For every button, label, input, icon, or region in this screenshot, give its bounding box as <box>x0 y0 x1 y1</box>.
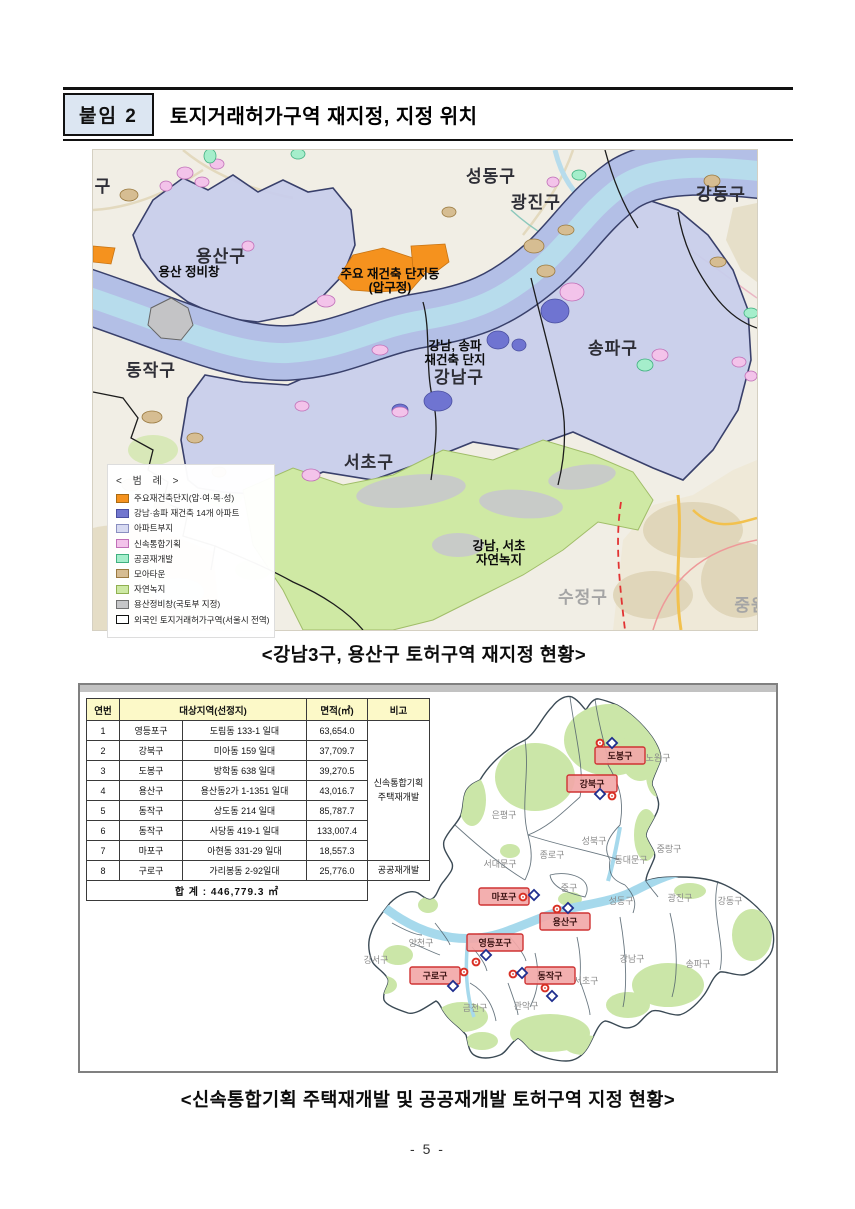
legend-item: 주요재건축단지(압·여·목·성) <box>116 492 266 504</box>
area-cell: 63,654.0 <box>307 721 368 741</box>
location-cell: 도림동 133-1 일대 <box>183 721 307 741</box>
highlighted-district-label: 구로구 <box>423 971 448 981</box>
table-header-row: 연번대상지역(선정지)면적(㎡)비고 <box>87 699 430 721</box>
district-label: 송파구 <box>588 339 638 358</box>
district-cell: 동작구 <box>120 801 183 821</box>
legend-label: 주요재건축단지(압·여·목·성) <box>134 492 234 504</box>
area-cell: 43,016.7 <box>307 781 368 801</box>
legend-swatch <box>116 585 129 594</box>
location-cell: 사당동 419-1 일대 <box>183 821 307 841</box>
legend-item: 강남·송파 재건축 14개 아파트 <box>116 507 266 519</box>
legend-label: 공공재개발 <box>134 553 173 565</box>
area-cell: 133,007.4 <box>307 821 368 841</box>
district-cell: 구로구 <box>120 861 183 881</box>
legend-label: 아파트부지 <box>134 522 173 534</box>
highlighted-district-label: 강북구 <box>580 778 605 789</box>
legend-swatch <box>116 554 129 563</box>
location-cell: 용산동2가 1-1351 일대 <box>183 781 307 801</box>
row-no: 5 <box>87 801 120 821</box>
map-legend: < 범 례 > 주요재건축단지(압·여·목·성)강남·송파 재건축 14개 아파… <box>107 464 275 638</box>
map-annotation: 강남, 서초자연녹지 <box>473 538 526 567</box>
map-annotation: 강남, 송파재건축 단지 <box>425 338 486 367</box>
district-label: 광진구 <box>668 892 693 903</box>
map-figure-gangnam-yongsan: 용산구성동구광진구강동구동작구강남구송파구서초구구수정구중원용산 정비창주요 재… <box>92 149 758 631</box>
row-no: 3 <box>87 761 120 781</box>
site-circle-dot <box>475 961 477 963</box>
district-label: 노원구 <box>646 753 671 763</box>
legend-swatch <box>116 600 129 609</box>
district-label: 중랑구 <box>657 843 682 854</box>
legend-item: 용산정비창(국토부 지정) <box>116 598 266 610</box>
row-no: 1 <box>87 721 120 741</box>
district-label: 은평구 <box>492 810 517 820</box>
legend-item: 신속통합기획 <box>116 538 266 550</box>
legend-swatch <box>116 615 129 624</box>
legend-item: 공공재개발 <box>116 553 266 565</box>
legend-swatch <box>116 569 129 578</box>
area-cell: 37,709.7 <box>307 741 368 761</box>
figure2-caption: <신속통합기획 주택재개발 및 공공재개발 토허구역 지정 현황> <box>78 1086 778 1112</box>
document-page: 붙임 2 토지거래허가구역 재지정, 지정 위치 <box>0 0 855 1209</box>
legend-label: 모아타운 <box>134 568 165 580</box>
figure1-caption: <강남3구, 용산구 토허구역 재지정 현황> <box>92 641 756 667</box>
district-label: 성동구 <box>466 167 516 186</box>
district-label: 성동구 <box>609 896 634 906</box>
row-no: 7 <box>87 841 120 861</box>
legend-title: < 범 례 > <box>116 472 266 487</box>
attachment-header: 붙임 2 토지거래허가구역 재지정, 지정 위치 <box>63 87 793 141</box>
location-cell: 아현동 331-29 일대 <box>183 841 307 861</box>
district-cell: 동작구 <box>120 821 183 841</box>
highlighted-district-label: 마포구 <box>492 891 517 902</box>
legend-label: 신속통합기획 <box>134 538 181 550</box>
row-no: 8 <box>87 861 120 881</box>
legend-item: 아파트부지 <box>116 522 266 534</box>
location-cell: 상도동 214 일대 <box>183 801 307 821</box>
remark-last-cell: 공공재개발 <box>368 861 430 881</box>
map-figure-seoul-designation: 노원구은평구성북구중랑구종로구서대문구동대문구중구성동구광진구강동구강남구송파구… <box>78 683 778 1073</box>
figure2-top-strip <box>80 685 776 692</box>
district-label: 구 <box>95 177 112 196</box>
neighbor-district-label: 수정구 <box>558 588 608 607</box>
district-label: 동작구 <box>126 361 176 380</box>
district-cell: 도봉구 <box>120 761 183 781</box>
legend-swatch <box>116 509 129 518</box>
column-header: 면적(㎡) <box>307 699 368 721</box>
district-label: 관악구 <box>514 1000 539 1011</box>
legend-swatch <box>116 494 129 503</box>
highlighted-district-label: 용산구 <box>553 916 578 927</box>
location-cell: 방학동 638 일대 <box>183 761 307 781</box>
site-circle-dot <box>599 742 601 744</box>
highlighted-district-label: 동작구 <box>538 971 563 981</box>
district-cell: 강북구 <box>120 741 183 761</box>
district-label: 성북구 <box>582 836 607 846</box>
legend-item: 외국인 토지거래허가구역(서울시 전역) <box>116 614 266 626</box>
area-cell: 25,776.0 <box>307 861 368 881</box>
area-cell: 18,557.3 <box>307 841 368 861</box>
legend-item: 자연녹지 <box>116 583 266 595</box>
neighbor-district-label: 중원 <box>734 596 757 615</box>
site-circle-dot <box>522 896 524 898</box>
area-cell: 39,270.5 <box>307 761 368 781</box>
location-cell: 가리봉동 2-92일대 <box>183 861 307 881</box>
column-header: 대상지역(선정지) <box>120 699 307 721</box>
district-label: 금천구 <box>463 1003 488 1013</box>
district-label: 양천구 <box>409 938 434 948</box>
location-cell: 미아동 159 일대 <box>183 741 307 761</box>
legend-label: 용산정비창(국토부 지정) <box>134 598 220 610</box>
district-label: 서초구 <box>574 976 599 986</box>
district-label: 송파구 <box>686 959 711 969</box>
designation-table: 연번대상지역(선정지)면적(㎡)비고 1영등포구도림동 133-1 일대63,6… <box>86 698 430 901</box>
site-circle-dot <box>512 973 514 975</box>
area-cell: 85,787.7 <box>307 801 368 821</box>
district-cell: 마포구 <box>120 841 183 861</box>
district-label: 종로구 <box>540 850 565 860</box>
district-label: 강동구 <box>696 185 746 204</box>
district-label: 강서구 <box>364 955 389 965</box>
district-cell: 용산구 <box>120 781 183 801</box>
row-no: 6 <box>87 821 120 841</box>
site-circle-dot <box>544 987 546 989</box>
district-label: 강남구 <box>434 368 484 387</box>
district-label: 동대문구 <box>614 855 647 865</box>
table-row: 8구로구가리봉동 2-92일대25,776.0공공재개발 <box>87 861 430 881</box>
total-cell: 합 계 : 446,779.3 ㎡ <box>87 881 368 901</box>
map-annotation: 용산 정비창 <box>159 264 220 279</box>
district-label: 서초구 <box>344 453 394 472</box>
legend-label: 자연녹지 <box>134 583 165 595</box>
site-circle-dot <box>463 971 465 973</box>
row-no: 2 <box>87 741 120 761</box>
district-label: 강남구 <box>620 954 645 964</box>
district-label: 중구 <box>561 883 578 893</box>
page-number: - 5 - <box>0 1141 855 1157</box>
column-header: 비고 <box>368 699 430 721</box>
site-circle-dot <box>611 795 613 797</box>
row-no: 4 <box>87 781 120 801</box>
legend-item: 모아타운 <box>116 568 266 580</box>
page-title: 토지거래허가구역 재지정, 지정 위치 <box>170 100 478 129</box>
site-circle-dot <box>556 908 558 910</box>
legend-label: 외국인 토지거래허가구역(서울시 전역) <box>134 614 270 626</box>
table-total-row: 합 계 : 446,779.3 ㎡ <box>87 881 430 901</box>
district-label: 서대문구 <box>483 859 516 869</box>
legend-label: 강남·송파 재건축 14개 아파트 <box>134 507 239 519</box>
remark-group-cell: 신속통합기획주택재개발 <box>368 721 430 861</box>
table-row: 1영등포구도림동 133-1 일대63,654.0신속통합기획주택재개발 <box>87 721 430 741</box>
highlighted-district-label: 도봉구 <box>608 751 633 761</box>
legend-swatch <box>116 524 129 533</box>
highlighted-district-label: 영등포구 <box>478 937 511 948</box>
district-label: 강동구 <box>718 896 743 906</box>
legend-swatch <box>116 539 129 548</box>
district-label: 용산구 <box>196 247 246 266</box>
district-cell: 영등포구 <box>120 721 183 741</box>
column-header: 연번 <box>87 699 120 721</box>
attachment-badge: 붙임 2 <box>63 93 154 136</box>
district-label: 광진구 <box>511 193 561 212</box>
